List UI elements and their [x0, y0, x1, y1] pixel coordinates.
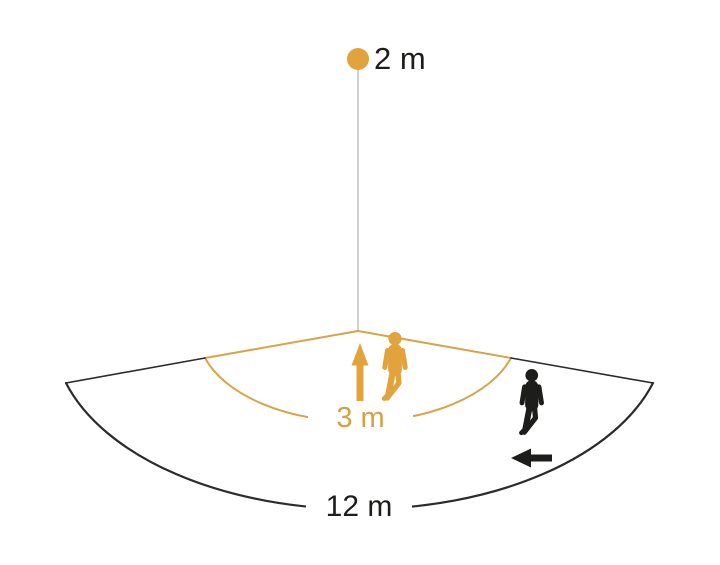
- inner-fan-right-edge: [358, 331, 511, 358]
- inner-fan-left-edge: [205, 331, 358, 358]
- left-arrow-icon: [511, 449, 552, 468]
- mounting-height-label: 2 m: [374, 42, 426, 76]
- outer-range-label: 12 m: [306, 490, 412, 523]
- detection-fan-canvas: [0, 0, 720, 565]
- walking-person-inner-icon: [384, 332, 405, 399]
- walking-person-outer-icon: [521, 369, 541, 433]
- outer-fan-left-edge: [66, 358, 205, 383]
- up-arrow-icon: [352, 343, 369, 401]
- sensor-dot-icon: [347, 48, 369, 70]
- sensor-range-diagram: 2 m 3 m 12 m: [0, 0, 720, 565]
- inner-range-label: 3 m: [308, 403, 413, 434]
